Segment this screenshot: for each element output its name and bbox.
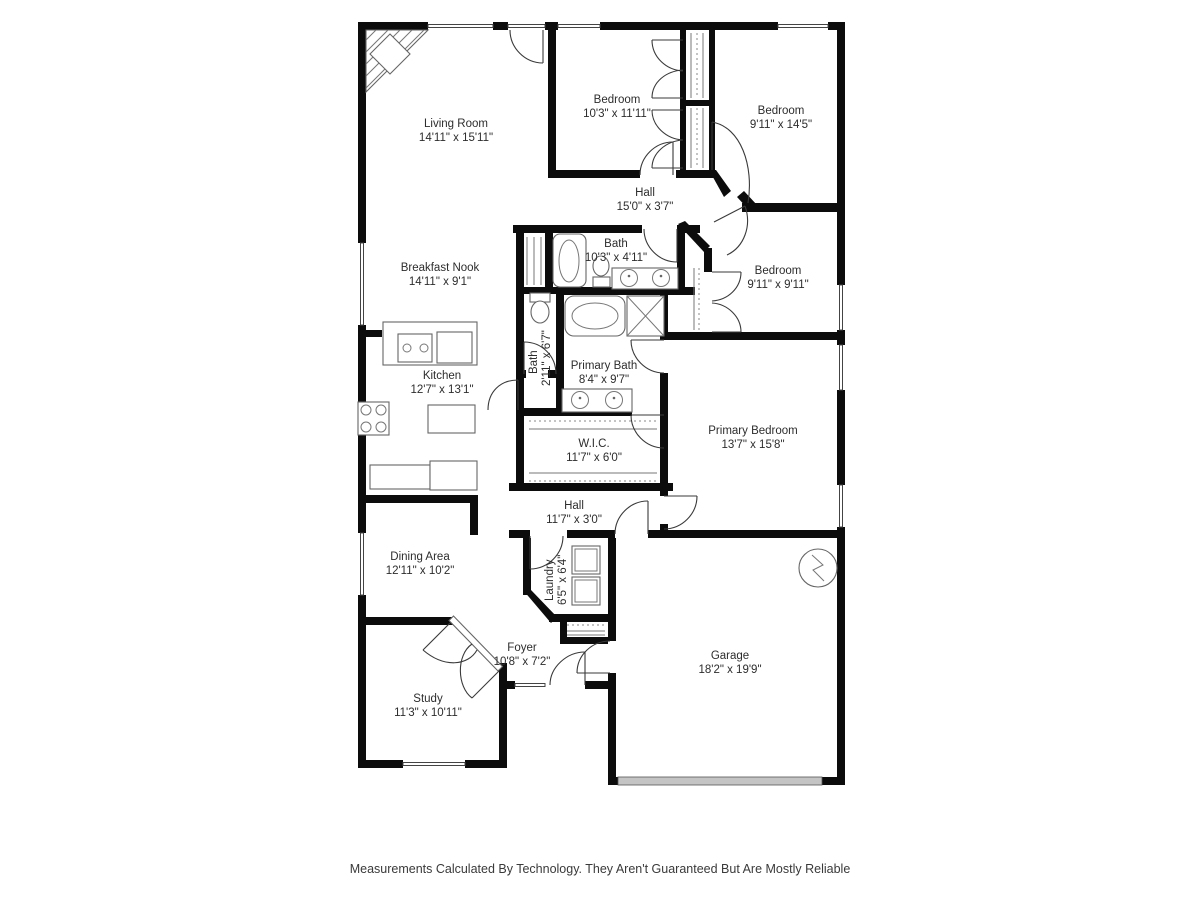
window-bedroom-top	[558, 22, 600, 30]
bedroom-closets	[691, 33, 703, 330]
laundry-fixtures	[572, 546, 600, 605]
patio-door	[510, 30, 543, 63]
fireplace	[366, 30, 428, 92]
window-living-top	[428, 22, 493, 30]
label-primary-bedroom: Primary Bedroom13'7" x 15'8"	[708, 425, 797, 451]
label-breakfast-nook: Breakfast Nook14'11" x 9'1"	[401, 262, 480, 288]
label-bedroom-right: Bedroom9'11" x 14'5"	[750, 105, 812, 131]
window-primary-1	[837, 345, 845, 390]
wic-door	[631, 415, 664, 448]
window-primary-2	[837, 485, 845, 527]
bath-half-fixtures	[530, 293, 550, 323]
label-foyer: Foyer10'8" x 7'2"	[494, 642, 551, 668]
primary-bedroom-door	[664, 496, 697, 529]
window-study	[403, 760, 465, 768]
window-breakfast-nook	[358, 243, 366, 325]
bedroom-mid-door	[714, 206, 748, 255]
label-dining-area: Dining Area12'11" x 10'2"	[386, 551, 455, 577]
label-hall-lower: Hall11'7" x 3'0"	[546, 500, 602, 526]
primary-bath-fixtures	[562, 296, 664, 412]
label-garage: Garage18'2" x 19'9"	[698, 650, 761, 676]
patio-door-opening	[508, 22, 545, 30]
label-bath-main: Bath10'3" x 4'11"	[585, 238, 647, 264]
label-bedroom-top: Bedroom10'3" x 11'11"	[583, 94, 651, 120]
label-study: Study11'3" x 10'11"	[394, 693, 462, 719]
hall-garage-door	[615, 501, 648, 534]
window-foyer-sidelite	[515, 681, 545, 689]
study-french-doors	[423, 616, 503, 698]
floor-plan: Living Room14'11" x 15'11" Bedroom10'3" …	[0, 0, 1200, 900]
window-bedroom-right-top	[778, 22, 828, 30]
label-hall-top: Hall15'0" x 3'7"	[617, 187, 674, 213]
water-heater	[799, 549, 837, 587]
garage-door	[618, 777, 822, 785]
kitchen-fixtures	[358, 322, 477, 490]
hall-corridor-door	[488, 380, 518, 410]
label-kitchen: Kitchen12'7" x 13'1"	[410, 370, 473, 396]
label-living-room: Living Room14'11" x 15'11"	[419, 118, 493, 144]
garage-entry-door	[577, 641, 610, 673]
label-primary-bath: Primary Bath8'4" x 9'7"	[571, 360, 637, 386]
label-bedroom-mid: Bedroom9'11" x 9'11"	[747, 265, 808, 291]
label-wic: W.I.C.11'7" x 6'0"	[566, 438, 622, 464]
window-dining	[358, 533, 366, 595]
label-bath-half: Bath2'11" x 6'7"	[528, 330, 553, 386]
window-bedroom-mid	[837, 285, 845, 330]
disclaimer-text: Measurements Calculated By Technology. T…	[350, 862, 851, 876]
bath-main-door	[644, 229, 677, 262]
coat-closet-rod	[567, 625, 605, 635]
wic-closet-rods	[529, 421, 657, 481]
bedroom-top-door	[640, 142, 673, 175]
floor-plan-page: Living Room14'11" x 15'11" Bedroom10'3" …	[0, 0, 1200, 900]
label-laundry: Laundry6'5" x 6'4"	[544, 555, 569, 605]
front-door	[550, 652, 585, 685]
